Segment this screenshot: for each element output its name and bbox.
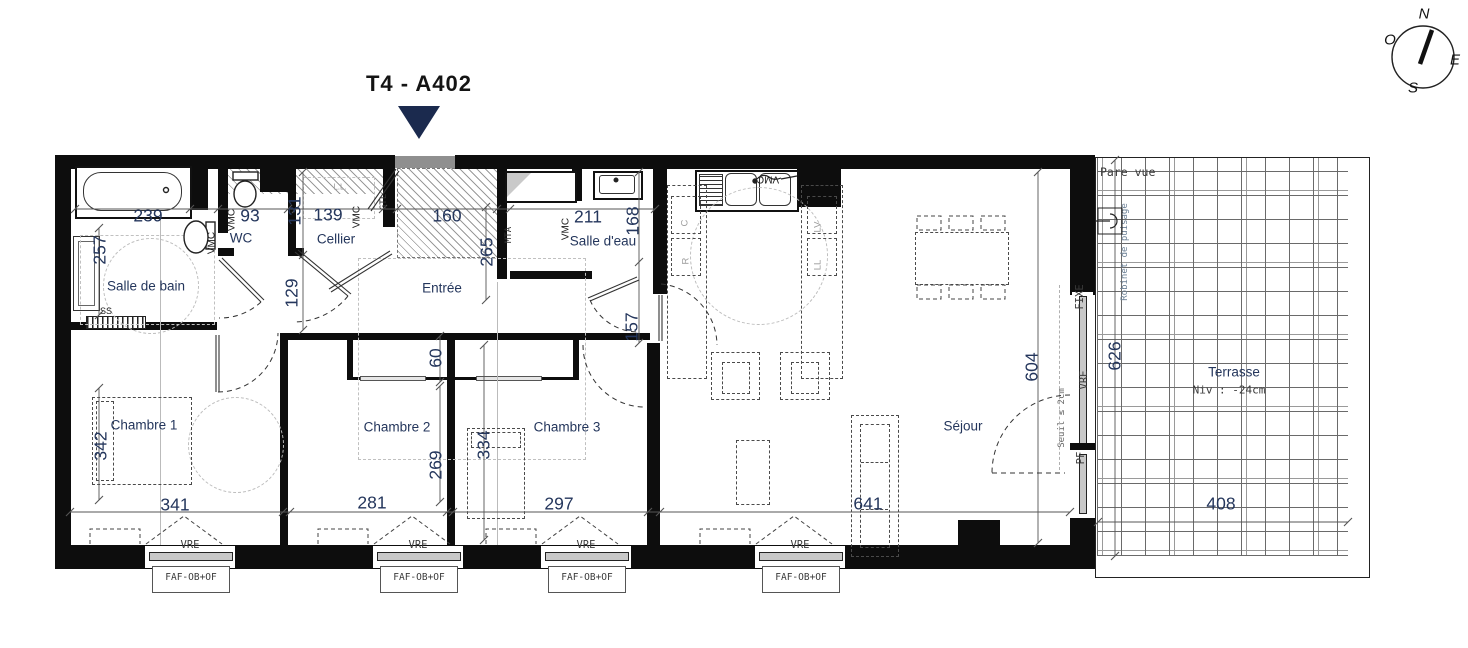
sofa-seat	[860, 424, 890, 548]
page-title: T4 - A402	[366, 71, 472, 97]
coffee-table-icon	[736, 440, 770, 505]
dim-257: 257	[90, 235, 111, 264]
compass-east: E	[1450, 52, 1460, 69]
dim-626: 626	[1105, 341, 1126, 370]
window-spec-box: FAF-OB+OF	[762, 566, 840, 593]
dim-297: 297	[544, 494, 573, 515]
turning-circle	[188, 397, 284, 493]
compass-south: S	[1408, 80, 1418, 97]
window-spec-box: FAF-OB+OF	[152, 566, 230, 593]
dim-641: 641	[853, 494, 882, 515]
armchair-seat	[791, 362, 819, 394]
shower-corner	[507, 173, 531, 197]
guide-line	[1059, 285, 1060, 470]
dim-60: 60	[426, 348, 447, 367]
dim-139: 139	[313, 205, 342, 226]
room-label-chambre1: Chambre 1	[111, 418, 178, 433]
window-label: PF	[1075, 452, 1087, 465]
dim-239: 239	[133, 206, 162, 227]
dining-table-icon	[915, 232, 1009, 285]
dim-131: 131	[285, 196, 306, 225]
dim-341: 341	[160, 495, 189, 516]
window-sash	[149, 552, 233, 561]
window-label: VRE	[181, 539, 200, 551]
dim-265: 265	[477, 237, 498, 266]
terrace-level: Niv : -24cm	[1193, 384, 1266, 397]
apartment-pointer-icon	[398, 106, 440, 139]
vmc-label: VMC	[561, 218, 572, 240]
room-label-salle-de-bain: Salle de bain	[107, 279, 185, 294]
window-label: VRE	[577, 539, 596, 551]
room-label-entree: Entrée	[422, 281, 462, 296]
appliance-label: LV	[813, 222, 824, 233]
dim-160: 160	[432, 206, 461, 227]
window-sash	[377, 552, 461, 561]
dim-157: 157	[622, 312, 643, 341]
door-swings	[218, 284, 1070, 473]
dim-129: 129	[282, 278, 303, 307]
window-spec: FAF-OB+OF	[165, 572, 216, 583]
tap-label: Robinet de puisage	[1120, 203, 1130, 301]
window-label: VRE	[409, 539, 428, 551]
wall	[55, 155, 71, 569]
door-jamb	[218, 248, 234, 256]
wall	[647, 343, 660, 546]
compass-icon	[1392, 26, 1454, 88]
duct-block	[260, 168, 288, 192]
dim-281: 281	[357, 493, 386, 514]
vmc-label: VMC	[352, 206, 363, 228]
room-label-wc: WC	[230, 231, 253, 246]
vmc-label: VMC	[757, 174, 779, 185]
armchair-seat	[722, 362, 750, 394]
window-spec: FAF-OB+OF	[561, 572, 612, 583]
closet-wall	[347, 340, 353, 380]
wall	[1070, 155, 1095, 295]
dim-342: 342	[91, 431, 112, 460]
room-label-cellier: Cellier	[317, 232, 355, 247]
door-jamb	[288, 248, 304, 256]
window-label: VRE	[1078, 371, 1090, 390]
appliance-outline	[671, 196, 701, 234]
appliance-label: C	[680, 220, 691, 227]
dim-211: 211	[574, 207, 602, 228]
gtl-label: GTL	[379, 194, 389, 210]
window-mullion	[1070, 443, 1095, 450]
floor-plan: T4 - A402 VRE VRE VRE VRE FAF-OB+OF FAF-	[0, 0, 1468, 648]
appliance-outline	[807, 238, 837, 276]
room-label-chambre2: Chambre 2	[364, 420, 431, 435]
window-label: FIXE	[1074, 284, 1086, 309]
radiator-label: SS	[100, 306, 112, 316]
wall	[653, 169, 667, 294]
vmc-label: VMC	[227, 209, 238, 231]
window-sash	[545, 552, 629, 561]
room-label-terrasse: Terrasse	[1208, 365, 1260, 380]
dim-604: 604	[1022, 352, 1043, 381]
washbasin-bowl	[599, 175, 635, 194]
vmc-label: VMC	[207, 232, 218, 254]
dim-93: 93	[240, 206, 259, 227]
dim-334: 334	[474, 430, 495, 459]
room-label-sejour: Séjour	[943, 419, 982, 434]
appliance-label: R	[681, 258, 692, 265]
window-spec-box: FAF-OB+OF	[548, 566, 626, 593]
appliance-label: LL	[813, 260, 824, 271]
window-label: VRE	[791, 539, 810, 551]
dim-408: 408	[1206, 494, 1235, 515]
dim-269: 269	[426, 450, 447, 479]
pillar	[958, 520, 1000, 545]
room-label-salle-deau: Salle d'eau	[570, 234, 636, 249]
dim-168: 168	[623, 206, 644, 235]
mta-label: MTA	[504, 227, 514, 243]
terrace-screen-label: Pare vue	[1100, 165, 1155, 179]
compass-north: N	[1419, 6, 1430, 23]
appliance-label: L.L.	[333, 183, 346, 192]
wall	[455, 155, 1070, 169]
window-sash	[759, 552, 843, 561]
compass-west: O	[1384, 32, 1396, 49]
window-spec: FAF-OB+OF	[393, 572, 444, 583]
room-label-chambre3: Chambre 3	[534, 420, 601, 435]
wall-entry-door-head	[395, 156, 455, 168]
window-spec: FAF-OB+OF	[775, 572, 826, 583]
window-spec-box: FAF-OB+OF	[380, 566, 458, 593]
sofa-divider	[861, 462, 888, 463]
